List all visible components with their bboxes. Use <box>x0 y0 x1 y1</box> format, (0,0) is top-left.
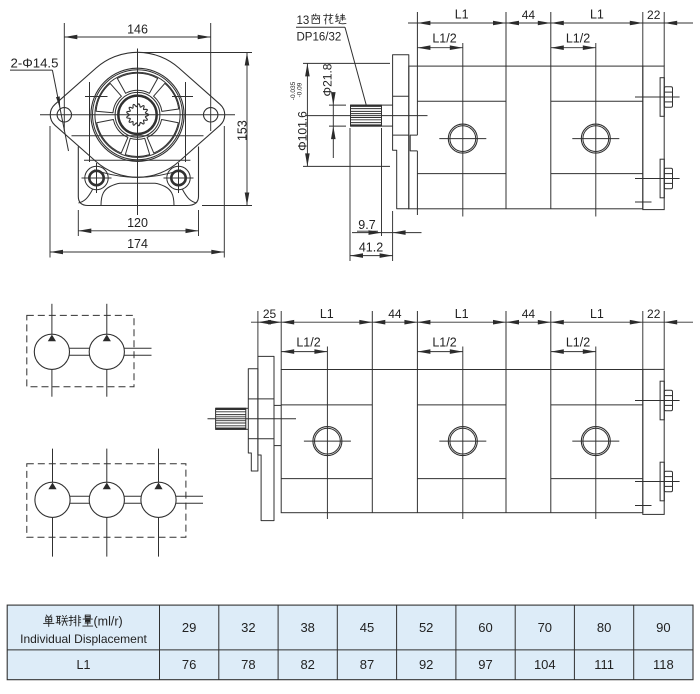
svg-text:146: 146 <box>127 23 148 37</box>
svg-text:L1/2: L1/2 <box>566 32 590 46</box>
svg-text:153: 153 <box>235 120 249 141</box>
svg-text:L1/2: L1/2 <box>432 32 456 46</box>
svg-text:80: 80 <box>597 620 611 635</box>
svg-text:Individual Displacement: Individual Displacement <box>20 632 147 646</box>
svg-text:70: 70 <box>538 620 552 635</box>
svg-text:45: 45 <box>360 620 374 635</box>
svg-text:41.2: 41.2 <box>359 241 383 255</box>
svg-text:Φ21.8: Φ21.8 <box>321 63 335 96</box>
svg-text:-0.09: -0.09 <box>297 82 304 97</box>
svg-text:L1: L1 <box>455 307 469 321</box>
svg-text:Φ101.6: Φ101.6 <box>296 111 310 151</box>
svg-text:118: 118 <box>653 657 674 672</box>
svg-text:L1: L1 <box>77 658 91 672</box>
svg-text:DP16/32: DP16/32 <box>297 32 342 44</box>
svg-text:(ml/r): (ml/r) <box>94 615 123 629</box>
svg-text:44: 44 <box>522 307 536 321</box>
svg-text:52: 52 <box>419 620 433 635</box>
svg-text:13: 13 <box>297 15 310 27</box>
svg-text:L1: L1 <box>590 8 604 22</box>
svg-text:29: 29 <box>182 620 196 635</box>
svg-text:92: 92 <box>419 657 433 672</box>
svg-text:76: 76 <box>182 657 196 672</box>
svg-text:174: 174 <box>127 237 148 251</box>
svg-text:97: 97 <box>478 657 492 672</box>
svg-text:120: 120 <box>127 216 148 230</box>
svg-text:22: 22 <box>647 8 661 22</box>
svg-text:9.7: 9.7 <box>358 218 375 232</box>
svg-text:L1: L1 <box>455 8 469 22</box>
svg-text:L1: L1 <box>320 307 334 321</box>
svg-text:L1/2: L1/2 <box>432 335 456 349</box>
svg-text:2-Φ14.5: 2-Φ14.5 <box>11 56 59 71</box>
svg-text:90: 90 <box>656 620 670 635</box>
svg-text:87: 87 <box>360 657 374 672</box>
svg-text:22: 22 <box>647 307 661 321</box>
svg-text:L1: L1 <box>590 307 604 321</box>
svg-text:44: 44 <box>388 307 402 321</box>
svg-text:78: 78 <box>241 657 255 672</box>
svg-text:25: 25 <box>263 307 277 321</box>
svg-text:38: 38 <box>300 620 314 635</box>
svg-text:44: 44 <box>522 8 536 22</box>
svg-text:60: 60 <box>478 620 492 635</box>
svg-text:111: 111 <box>594 657 614 672</box>
svg-text:L1/2: L1/2 <box>296 335 320 349</box>
svg-text:82: 82 <box>300 657 314 672</box>
svg-text:104: 104 <box>534 657 556 672</box>
svg-text:L1/2: L1/2 <box>566 335 590 349</box>
svg-text:32: 32 <box>241 620 255 635</box>
